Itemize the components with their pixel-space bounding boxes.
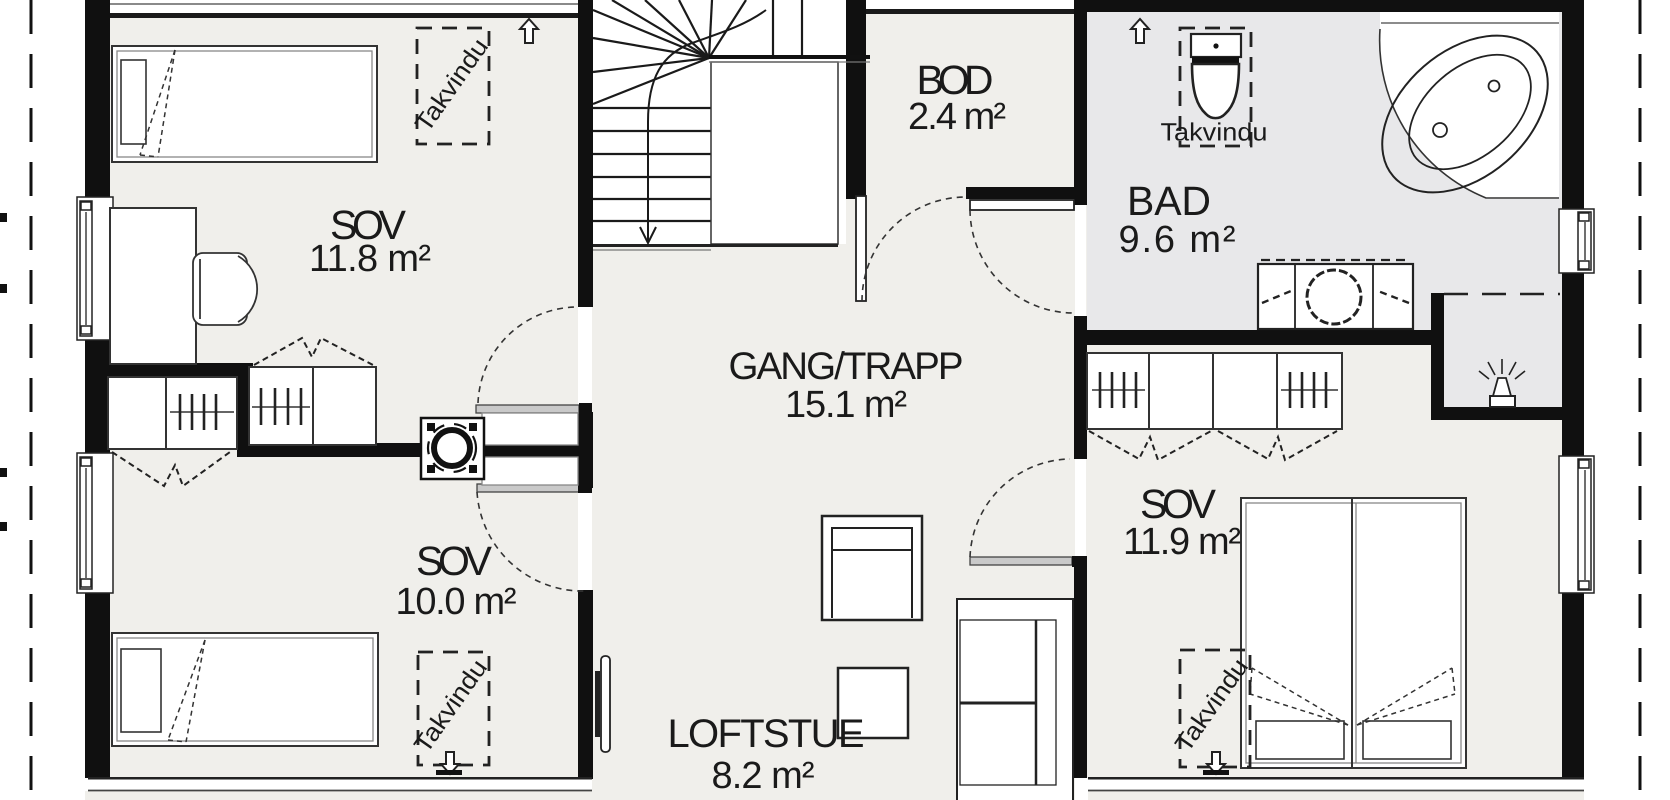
svg-text:8.2 m²: 8.2 m² <box>712 755 815 797</box>
svg-text:9.6 m²: 9.6 m² <box>1119 219 1236 261</box>
svg-text:2.4 m²: 2.4 m² <box>908 96 1006 138</box>
svg-text:BAD: BAD <box>1127 178 1211 224</box>
svg-text:11.9 m²: 11.9 m² <box>1123 521 1241 563</box>
svg-text:11.8 m²: 11.8 m² <box>309 238 431 280</box>
svg-text:10.0 m²: 10.0 m² <box>396 581 517 623</box>
svg-text:SOV: SOV <box>416 538 493 584</box>
svg-text:15.1 m²: 15.1 m² <box>785 384 907 426</box>
svg-text:Takvindu: Takvindu <box>1161 119 1268 147</box>
svg-text:LOFTSTUE: LOFTSTUE <box>668 712 865 756</box>
svg-text:GANG/TRAPP: GANG/TRAPP <box>729 345 964 388</box>
